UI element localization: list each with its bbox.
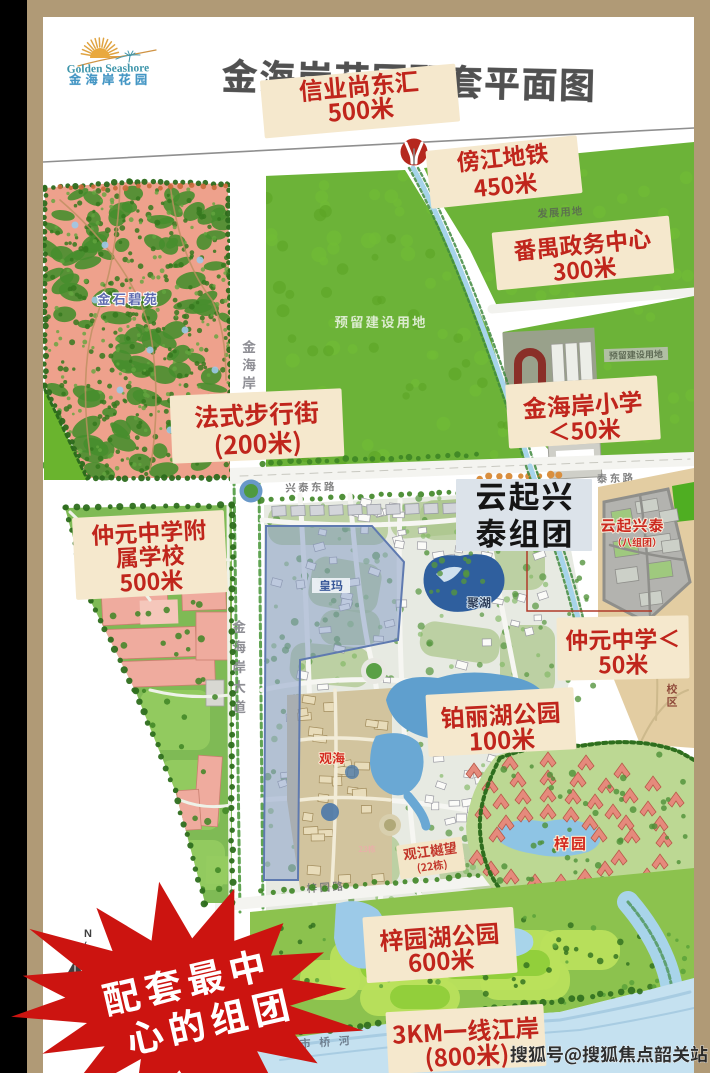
svg-text:N: N [84,928,92,940]
